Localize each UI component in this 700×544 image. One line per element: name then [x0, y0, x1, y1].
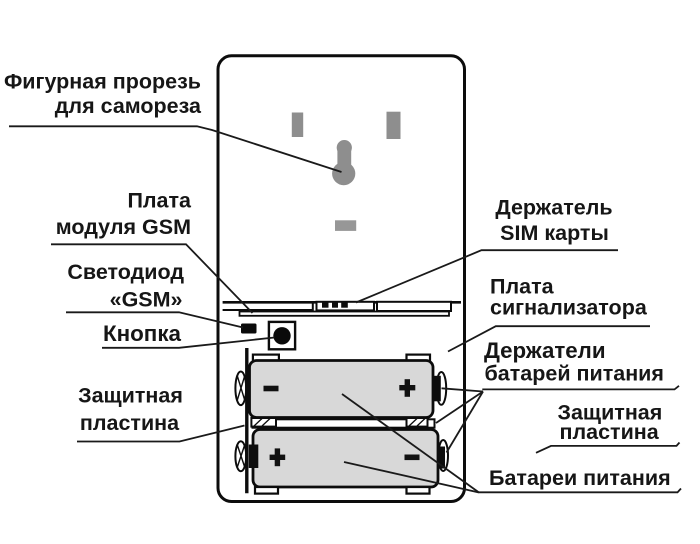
- svg-text:пластина: пластина: [80, 411, 180, 435]
- svg-text:«GSM»: «GSM»: [110, 288, 183, 312]
- svg-text:сигнализатора: сигнализатора: [490, 296, 648, 320]
- svg-text:для самореза: для самореза: [55, 94, 202, 118]
- svg-text:Держатели: Держатели: [484, 338, 606, 363]
- svg-text:модуля GSM: модуля GSM: [56, 215, 191, 239]
- svg-text:Фигурная прорезь: Фигурная прорезь: [4, 70, 201, 94]
- svg-text:Батареи питания: Батареи питания: [489, 466, 671, 490]
- svg-text:Защитная: Защитная: [78, 384, 183, 408]
- svg-text:Держатель: Держатель: [495, 196, 612, 220]
- svg-text:Светодиод: Светодиод: [67, 260, 184, 284]
- svg-text:SIM карты: SIM карты: [500, 221, 609, 245]
- svg-text:Плата: Плата: [127, 189, 192, 213]
- svg-text:Кнопка: Кнопка: [103, 321, 182, 346]
- svg-text:пластина: пластина: [560, 420, 660, 444]
- svg-text:батарей питания: батарей питания: [485, 362, 664, 386]
